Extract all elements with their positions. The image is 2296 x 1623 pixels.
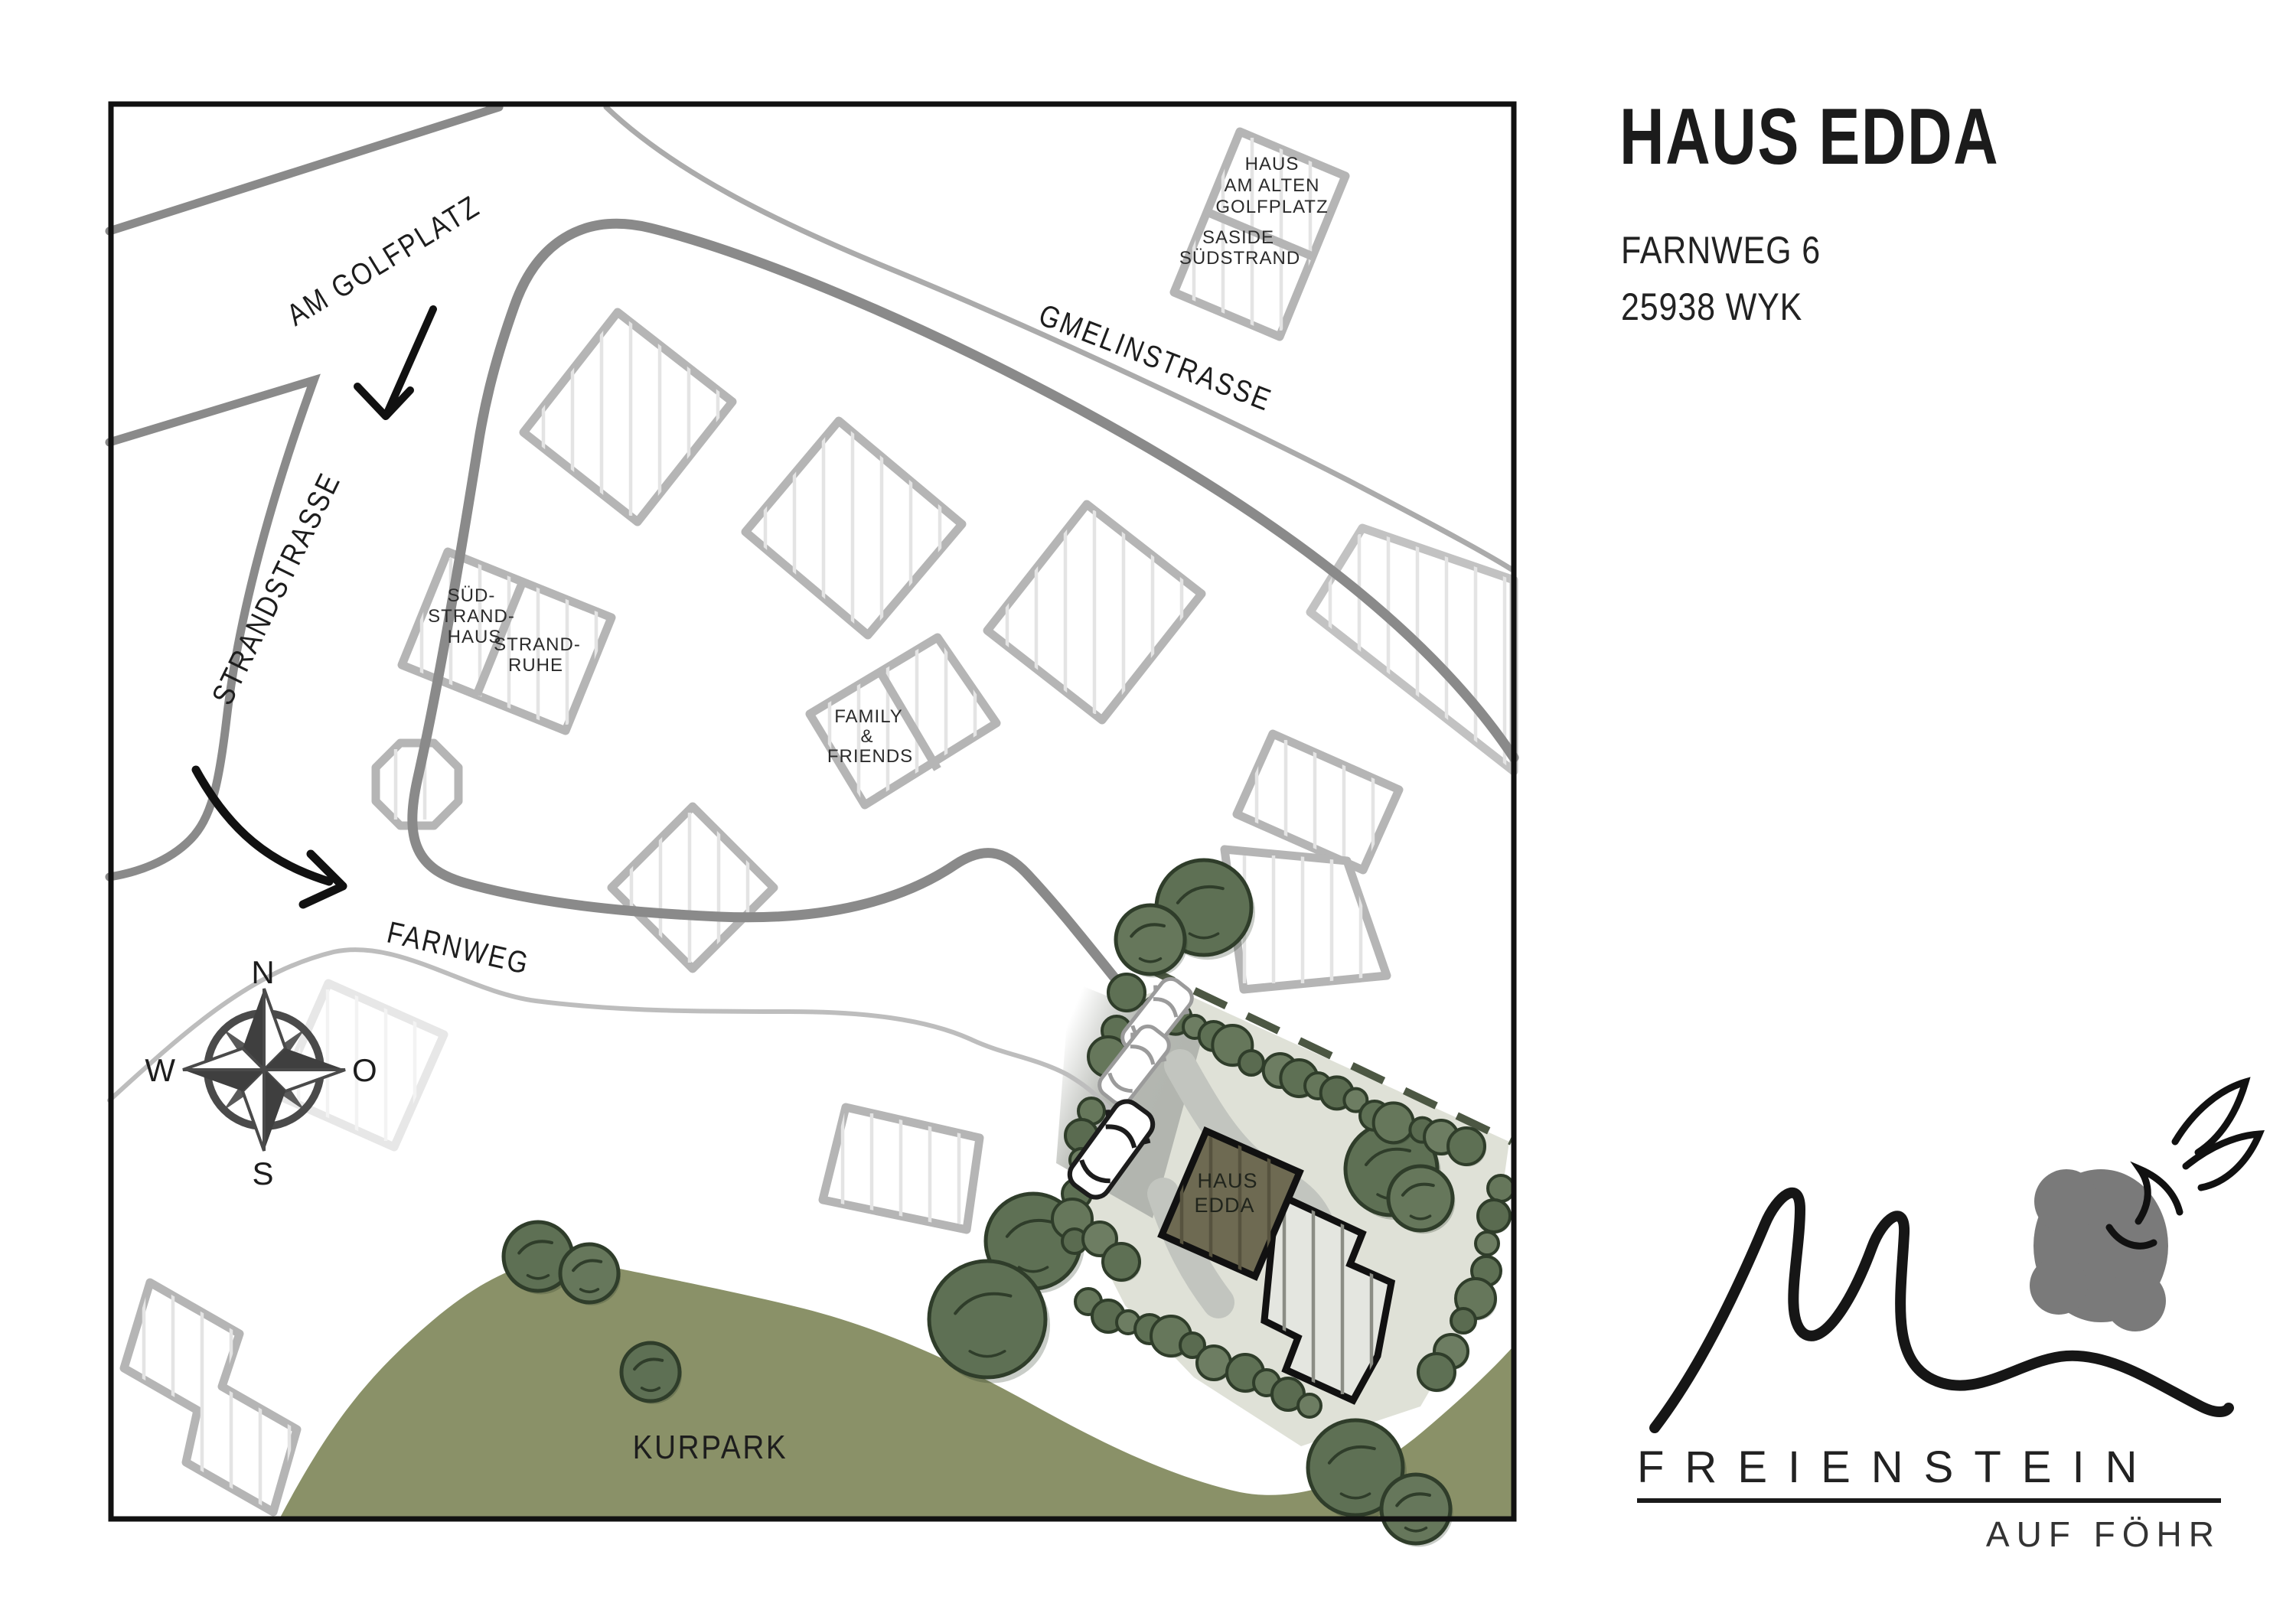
address-city: 25938 WYK xyxy=(1621,285,1802,329)
address-street: FARNWEG 6 xyxy=(1621,228,1821,272)
tree-icon xyxy=(1418,1354,1456,1392)
compass-e-label: O xyxy=(352,1052,380,1088)
label-haus-am-alten-golfplatz-1: HAUS xyxy=(1245,154,1300,174)
label-haus-edda-house-2: EDDA xyxy=(1194,1194,1254,1217)
label-sued-strand-haus-1: SÜD- xyxy=(448,585,496,606)
label-saside-suedstrand-2: SÜDSTRAND xyxy=(1179,248,1300,269)
tree-icon xyxy=(560,1244,621,1305)
tree-icon xyxy=(1116,905,1188,978)
brand-divider xyxy=(1637,1498,2221,1503)
label-kurpark: KURPARK xyxy=(633,1428,788,1466)
label-haus-am-alten-golfplatz-3: GOLFPLATZ xyxy=(1215,197,1328,217)
label-haus-edda-house-1: HAUS xyxy=(1197,1169,1257,1192)
freienstein-logo-art xyxy=(1655,1082,2259,1428)
brand-name: FREIENSTEIN xyxy=(1637,1442,2223,1493)
tree-icon xyxy=(1374,1103,1415,1145)
compass-n-label: N xyxy=(251,954,276,990)
tree-icon xyxy=(1448,1128,1486,1166)
tree-icon xyxy=(1103,1243,1141,1282)
compass-s-label: S xyxy=(252,1155,276,1191)
label-family-friends-1: FAMILY xyxy=(834,706,903,727)
tree-icon xyxy=(1298,1394,1322,1419)
page-title: HAUS EDDA xyxy=(1619,92,1999,183)
label-strand-ruhe-2: RUHE xyxy=(508,655,563,676)
label-haus-am-alten-golfplatz-2: AM ALTEN xyxy=(1225,175,1320,196)
tree-icon xyxy=(1478,1200,1512,1234)
tree-icon xyxy=(621,1343,682,1404)
label-family-friends-2: & xyxy=(860,726,873,747)
label-sued-strand-haus-2: STRAND- xyxy=(428,606,515,627)
label-family-friends-3: FRIENDS xyxy=(827,746,913,767)
brand-tagline: AUF FÖHR xyxy=(1637,1514,2221,1555)
tree-icon xyxy=(1381,1475,1453,1547)
tree-icon xyxy=(1476,1232,1499,1256)
label-strand-ruhe-1: STRAND- xyxy=(494,634,581,655)
site-plan-map: N O S W AM GOLFPLATZ STRANDSTRASSE GMELI… xyxy=(0,0,2296,1623)
compass-w-label: W xyxy=(145,1052,178,1088)
label-saside-suedstrand-1: SASIDE xyxy=(1202,227,1274,248)
tree-icon xyxy=(1239,1051,1264,1077)
tree-icon xyxy=(1388,1166,1455,1234)
tree-icon xyxy=(1108,974,1146,1012)
tree-icon xyxy=(1451,1309,1476,1335)
